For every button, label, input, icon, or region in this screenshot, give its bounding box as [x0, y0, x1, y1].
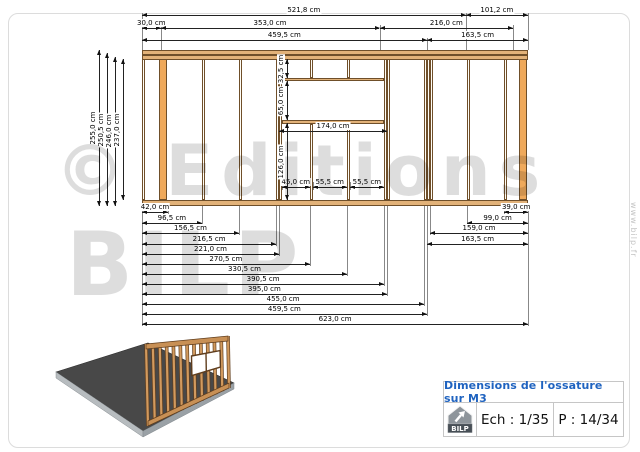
dimension-arrow: [142, 322, 147, 326]
dimension-arrow: [508, 26, 513, 30]
title-block: Dimensions de l'ossature sur M3 BILP Ech…: [443, 381, 624, 437]
dimension-arrow: [142, 38, 147, 42]
cripple-stud-top: [310, 59, 313, 78]
dimension-line: [142, 274, 347, 275]
website-url: www.bilp.fr: [629, 202, 638, 258]
dimension-label: 156,5 cm: [173, 224, 208, 232]
extension-line: [202, 206, 203, 225]
extension-line: [387, 206, 388, 296]
dimension-line: [161, 28, 380, 29]
dimension-arrow: [142, 312, 147, 316]
dimension-arrow: [142, 272, 147, 276]
scale-value: Ech : 1/35: [477, 403, 554, 436]
dimension-label: 521,8 cm: [286, 6, 321, 14]
dimension-label: 216,5 cm: [192, 235, 227, 243]
extension-line: [528, 13, 529, 50]
dimension-arrow: [466, 13, 471, 17]
dimension-label: 250,5 cm: [97, 112, 105, 147]
extension-line: [528, 206, 529, 246]
extension-line: [424, 206, 425, 306]
top-plate-lower: [142, 55, 528, 60]
dimension-line: [380, 28, 514, 29]
dimension-arrow: [427, 38, 432, 42]
dimension-arrow: [142, 282, 147, 286]
dimension-arrow: [97, 50, 101, 55]
dimension-arrow: [105, 201, 109, 206]
dimension-arrow: [142, 252, 147, 256]
dimension-label: 55,5 cm: [314, 178, 344, 186]
dimension-arrow: [142, 242, 147, 246]
window-header: [282, 78, 384, 81]
bottom-plate: [142, 200, 528, 206]
bilp-logo: BILP: [444, 403, 477, 436]
dimension-line: [142, 15, 466, 16]
dimension-arrow: [382, 129, 387, 133]
dimension-arrow: [121, 195, 125, 200]
wall-post: [159, 59, 167, 200]
dimension-arrow: [430, 231, 435, 235]
dimension-arrow: [427, 242, 432, 246]
dimension-label: 163,5 cm: [460, 235, 495, 243]
wall-stud: [142, 59, 145, 200]
wall-stud: [202, 59, 205, 200]
dimension-label: 96,5 cm: [157, 214, 187, 222]
wall-stud: [387, 59, 390, 200]
dimension-arrow: [121, 59, 125, 64]
dimension-label: 390,5 cm: [246, 275, 281, 283]
dimension-label: 126,0 cm: [277, 144, 285, 179]
dimension-line: [427, 40, 528, 41]
dimension-line: [142, 314, 427, 315]
dimension-arrow: [523, 13, 528, 17]
dimension-label: 455,0 cm: [266, 295, 301, 303]
extension-line: [384, 206, 385, 286]
wall-stud: [239, 59, 242, 200]
wall-stud: [504, 59, 507, 200]
dimension-arrow: [234, 231, 239, 235]
dimension-label: 246,0 cm: [105, 114, 113, 149]
dimension-arrow: [285, 73, 289, 78]
dimension-arrow: [142, 262, 147, 266]
dimension-label: 101,2 cm: [479, 6, 514, 14]
dimension-line: [142, 264, 310, 265]
dimension-line: [287, 123, 288, 200]
wall-post: [519, 59, 527, 200]
cripple-stud-top: [347, 59, 350, 78]
dimension-arrow: [285, 115, 289, 120]
dimension-arrow: [285, 123, 289, 128]
dimension-line: [142, 294, 387, 295]
extension-line: [310, 206, 311, 266]
dimension-label: 55,5 cm: [352, 178, 382, 186]
extension-line: [279, 206, 280, 256]
dimension-label: 174,0 cm: [316, 122, 351, 130]
extension-line: [239, 206, 240, 235]
dimension-arrow: [419, 302, 424, 306]
dimension-arrow: [113, 201, 117, 206]
dimension-arrow: [142, 13, 147, 17]
dimension-arrow: [285, 59, 289, 64]
dimension-label: 39,0 cm: [501, 203, 531, 211]
title-block-title: Dimensions de l'ossature sur M3: [444, 379, 623, 405]
title-block-header: Dimensions de l'ossature sur M3: [444, 382, 623, 403]
dimension-line: [427, 244, 528, 245]
dimension-label: 163,5 cm: [460, 31, 495, 39]
extension-line: [427, 206, 428, 246]
dimension-label: 255,0 cm: [89, 111, 97, 146]
dimension-label: 623,0 cm: [318, 315, 353, 323]
dimension-label: 459,5 cm: [267, 305, 302, 313]
dimension-arrow: [279, 129, 284, 133]
dimension-arrow: [142, 231, 147, 235]
dimension-label: 270,5 cm: [208, 255, 243, 263]
dimension-arrow: [285, 81, 289, 86]
dimension-label: 216,0 cm: [429, 19, 464, 27]
dimension-arrow: [523, 242, 528, 246]
dimension-label: 99,0 cm: [482, 214, 512, 222]
3d-preview: [48, 330, 243, 445]
dimension-arrow: [305, 262, 310, 266]
dimension-arrow: [382, 292, 387, 296]
dimension-arrow: [271, 242, 276, 246]
wall-stud: [430, 59, 433, 200]
dimension-line: [466, 15, 529, 16]
dimension-arrow: [380, 26, 385, 30]
dimension-label: 65,0 cm: [277, 85, 285, 115]
dimension-label: 32,5 cm: [277, 53, 285, 83]
dimension-arrow: [422, 312, 427, 316]
dimension-arrow: [97, 201, 101, 206]
dimension-label: 353,0 cm: [253, 19, 288, 27]
dimension-label: 237,0 cm: [113, 112, 121, 147]
dimension-arrow: [142, 221, 147, 225]
dimension-line: [142, 40, 427, 41]
extension-line: [276, 206, 277, 246]
logo-text: BILP: [451, 425, 469, 433]
dimension-arrow: [285, 195, 289, 200]
dimension-arrow: [379, 282, 384, 286]
dimension-label: 42,0 cm: [140, 203, 170, 211]
dimension-arrow: [523, 38, 528, 42]
dimension-arrow: [523, 221, 528, 225]
wall-stud: [467, 59, 470, 200]
dimension-arrow: [142, 302, 147, 306]
dimension-label: 330,5 cm: [227, 265, 262, 273]
extension-line: [347, 206, 348, 276]
page-number: P : 14/34: [554, 403, 623, 436]
dimension-line: [123, 59, 124, 200]
extension-line: [513, 25, 514, 50]
dimension-arrow: [105, 53, 109, 58]
dimension-line: [142, 324, 528, 325]
dimension-arrow: [274, 252, 279, 256]
dimension-arrow: [142, 292, 147, 296]
dimension-label: 221,0 cm: [193, 245, 228, 253]
dimension-label: 395,0 cm: [247, 285, 282, 293]
dimension-line: [279, 131, 387, 132]
dimension-label: 459,5 cm: [267, 31, 302, 39]
dimension-arrow: [342, 272, 347, 276]
dimension-arrow: [161, 26, 166, 30]
dimension-arrow: [523, 231, 528, 235]
dimension-arrow: [113, 57, 117, 62]
dimension-arrow: [523, 322, 528, 326]
dimension-label: 159,0 cm: [462, 224, 497, 232]
plan-page: 521,8 cm101,2 cm30,0 cm353,0 cm216,0 cm4…: [0, 0, 640, 452]
dimension-label: 45,0 cm: [281, 178, 311, 186]
